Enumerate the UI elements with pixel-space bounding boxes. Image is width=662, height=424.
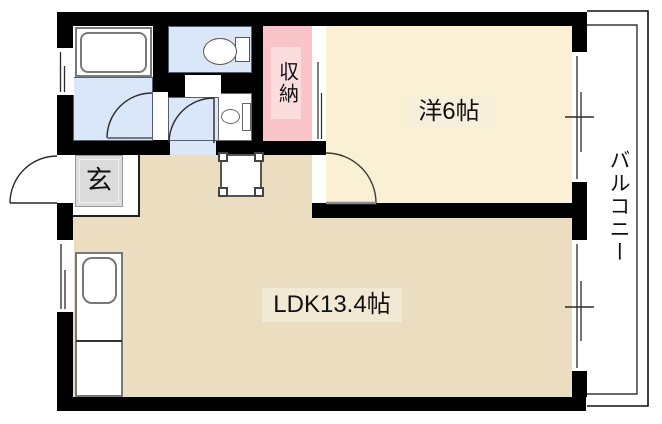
- room-label-storage: 収納: [271, 47, 301, 119]
- room-label-ldk-text: LDK13.4帖: [273, 292, 390, 317]
- plan-lines-overlay: [0, 0, 662, 424]
- bathroom-door-arc: [107, 93, 152, 138]
- room-label-western: 洋6帖: [405, 96, 493, 128]
- room-label-entrance: 玄: [75, 155, 123, 207]
- room-label-western-text: 洋6帖: [418, 99, 479, 124]
- room-label-balcony-text: バルコニー: [607, 149, 629, 264]
- washroom-door-arc: [169, 98, 214, 143]
- closet-door-lines: [318, 62, 322, 139]
- window-tick-marks: [565, 117, 594, 307]
- room-label-storage-text: 収納: [276, 61, 297, 105]
- western-door-arc: [326, 153, 376, 203]
- room-label-entrance-text: 玄: [86, 167, 112, 194]
- room-label-balcony: バルコニー: [603, 126, 633, 286]
- room-label-ldk: LDK13.4帖: [262, 288, 402, 322]
- floorplan-canvas: 洋6帖 LDK13.4帖 収納 玄 バルコニー: [0, 0, 662, 424]
- entrance-door-arc: [10, 156, 57, 203]
